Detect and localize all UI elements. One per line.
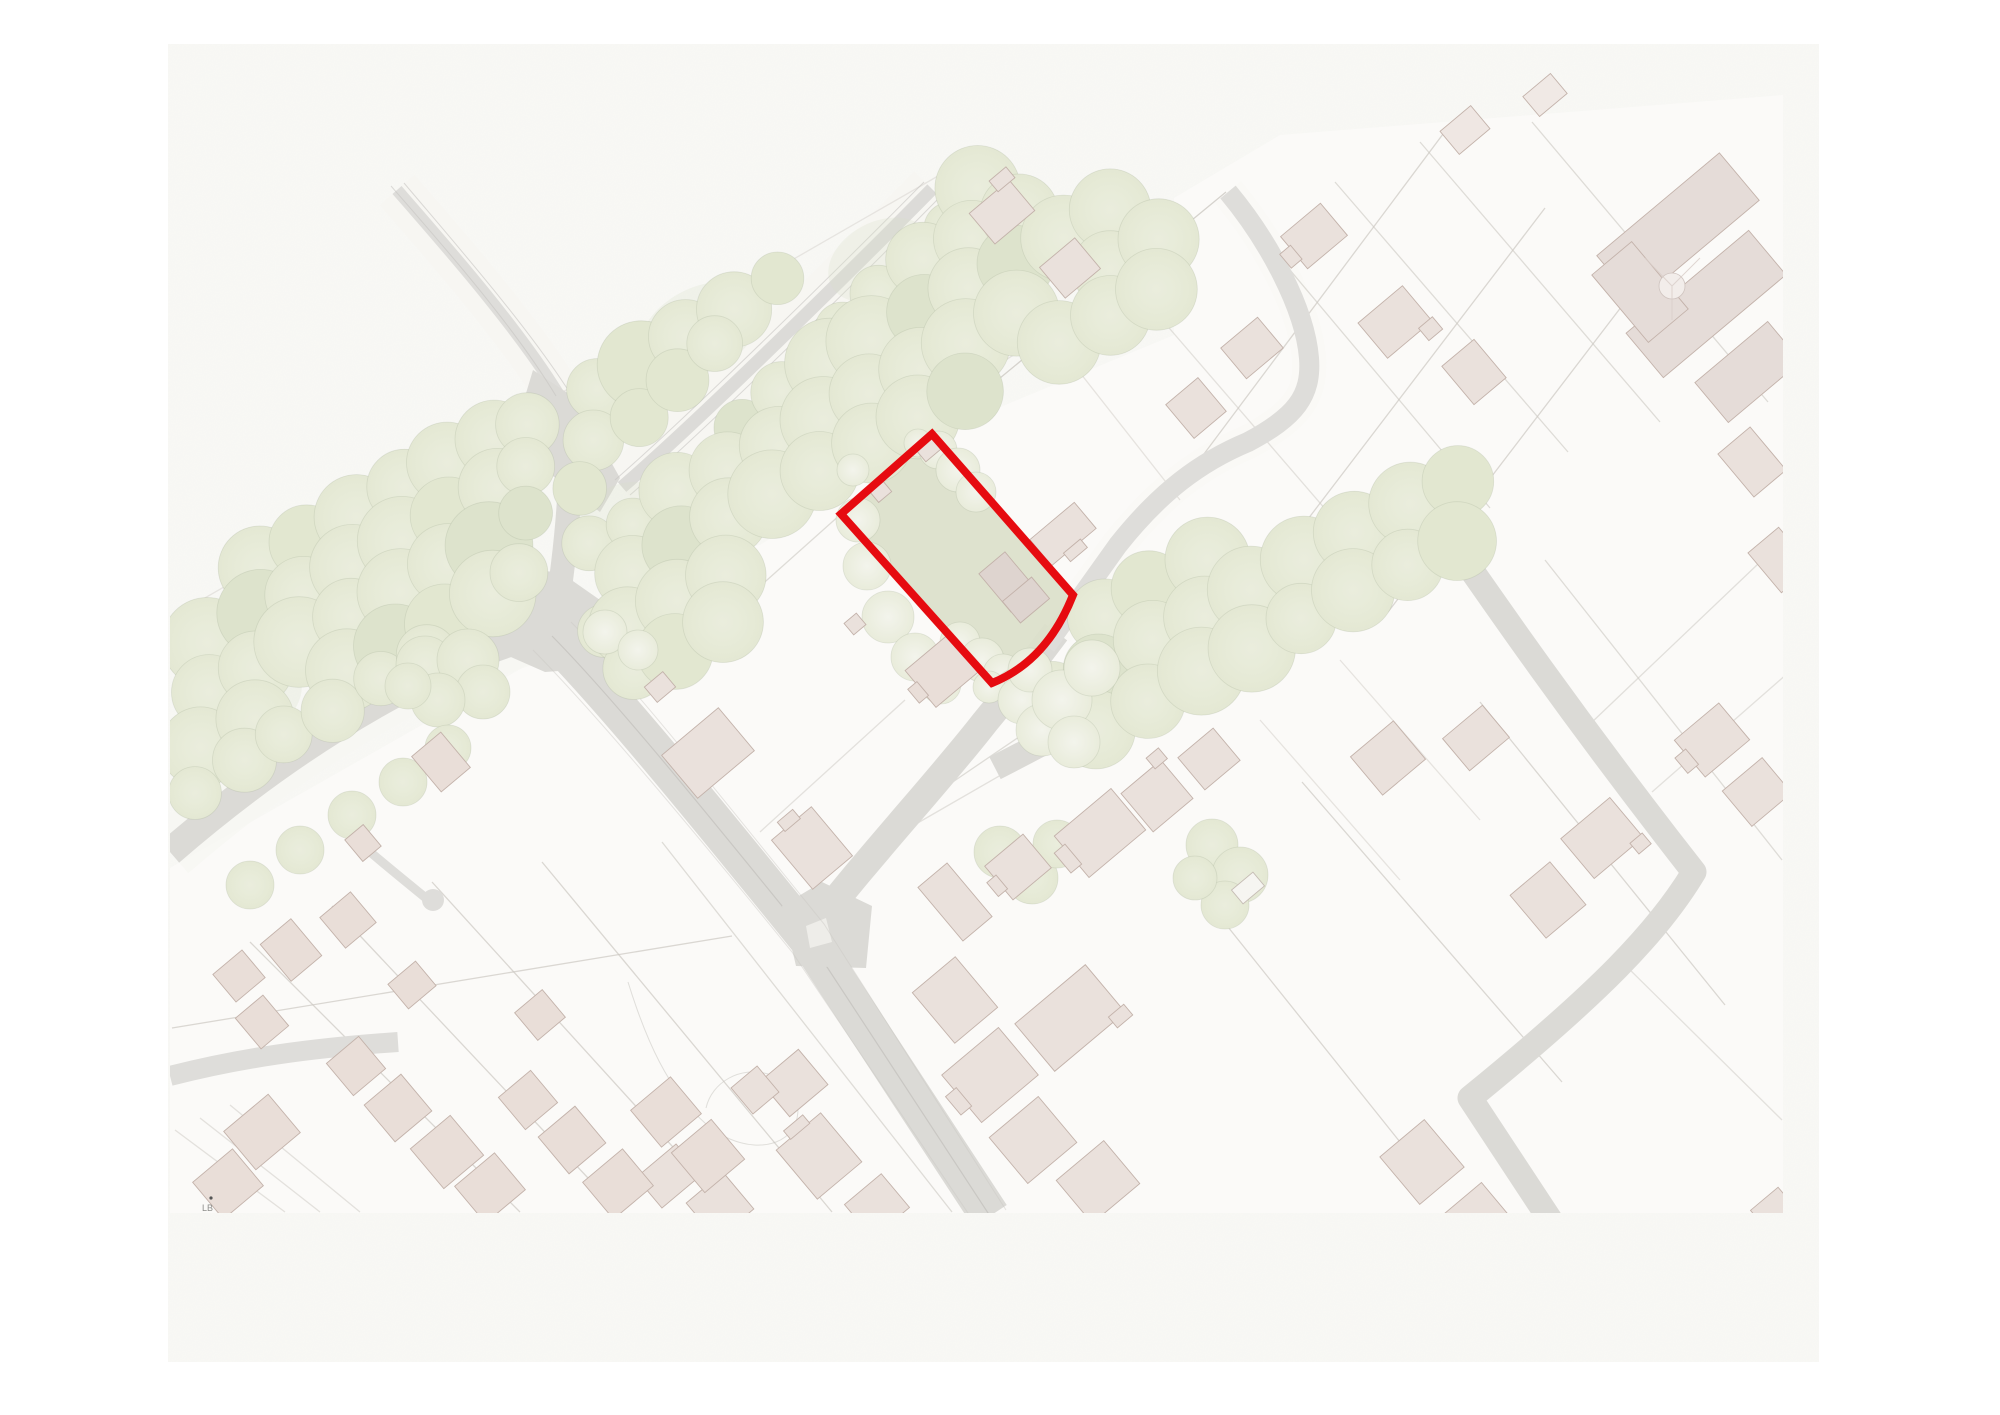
svg-text:LB: LB [202,1203,213,1213]
